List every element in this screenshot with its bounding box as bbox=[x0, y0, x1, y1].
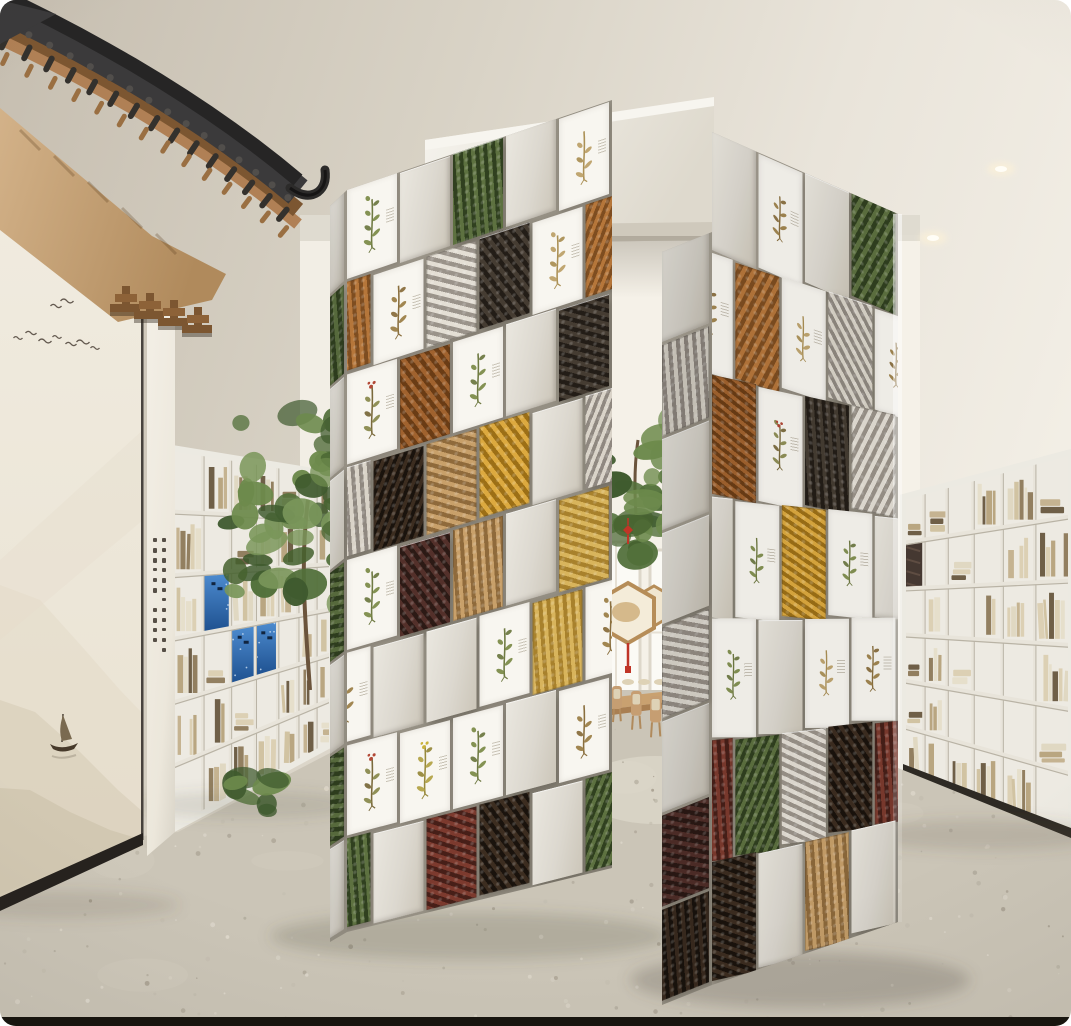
herb-photo-block bbox=[712, 375, 756, 503]
specimen-caption bbox=[386, 207, 394, 224]
plain-block bbox=[506, 118, 556, 227]
herb-photo-block bbox=[559, 486, 609, 593]
specimen-caption bbox=[518, 638, 526, 654]
herb-photo-block bbox=[662, 797, 709, 907]
herb-photo-block bbox=[330, 562, 344, 662]
herb-print-block bbox=[782, 277, 826, 402]
herb-photo-block bbox=[400, 344, 450, 450]
herb-photo-block bbox=[427, 806, 477, 909]
specimen-caption bbox=[814, 330, 822, 347]
herb-photo-block bbox=[805, 832, 849, 950]
herb-print-block bbox=[805, 619, 849, 728]
plain-block bbox=[852, 821, 896, 934]
herb-print-block bbox=[347, 359, 397, 465]
plain-block bbox=[506, 309, 556, 416]
herb-print-block bbox=[828, 509, 872, 620]
plain-block bbox=[506, 499, 556, 605]
specimen-caption bbox=[861, 553, 869, 568]
herb-photo-block bbox=[330, 284, 344, 386]
herb-print-block bbox=[453, 705, 503, 809]
herb-print-block bbox=[712, 618, 756, 737]
herb-photo-block bbox=[712, 852, 756, 981]
specimen-caption bbox=[492, 741, 500, 757]
herb-photo-block bbox=[662, 891, 709, 1001]
herb-print-block bbox=[347, 732, 397, 835]
plain-block bbox=[805, 173, 849, 301]
herb-print-block bbox=[453, 326, 503, 433]
plain-block bbox=[759, 620, 803, 734]
plain-block bbox=[533, 398, 583, 505]
specimen-caption bbox=[386, 394, 394, 411]
herb-print-block bbox=[559, 102, 609, 211]
herb-print-block bbox=[480, 602, 530, 707]
portal-right-wall bbox=[712, 132, 898, 985]
plain-block bbox=[330, 655, 344, 754]
plain-block bbox=[330, 192, 344, 294]
herb-photo-block bbox=[782, 728, 826, 844]
portal-left-wall-edge bbox=[330, 190, 347, 942]
plain-block bbox=[374, 633, 424, 737]
specimen-caption bbox=[492, 362, 500, 379]
herb-print-block bbox=[374, 259, 424, 365]
herb-photo-block bbox=[662, 326, 709, 436]
herb-photo-block bbox=[735, 263, 779, 394]
herb-photo-block bbox=[480, 792, 530, 896]
portal-right-wall-end bbox=[662, 232, 712, 1005]
herb-photo-block bbox=[852, 405, 896, 518]
herb-photo-block bbox=[427, 240, 477, 347]
plain-block bbox=[330, 470, 344, 570]
specimen-caption bbox=[386, 767, 394, 783]
herb-photo-block bbox=[782, 505, 826, 621]
herb-print-block bbox=[533, 207, 583, 315]
plain-block bbox=[374, 821, 424, 924]
specimen-caption bbox=[571, 243, 579, 260]
specimen-caption bbox=[359, 681, 367, 697]
herb-print-block bbox=[852, 618, 896, 722]
specimen-caption bbox=[386, 581, 394, 597]
herb-print-block bbox=[347, 545, 397, 649]
specimen-caption bbox=[837, 660, 845, 674]
herb-photo-block bbox=[533, 589, 583, 695]
herb-photo-block bbox=[828, 722, 872, 833]
herb-photo-block bbox=[453, 137, 503, 245]
herb-photo-block bbox=[330, 748, 344, 846]
herb-photo-block bbox=[662, 609, 709, 719]
plain-block bbox=[712, 131, 756, 269]
herb-photo-block bbox=[828, 291, 872, 411]
herb-photo-block bbox=[453, 516, 503, 622]
herb-print-block bbox=[735, 501, 779, 622]
herb-photo-block bbox=[400, 532, 450, 637]
specimen-caption bbox=[884, 657, 892, 671]
herb-print-block bbox=[759, 387, 803, 510]
herb-print-block bbox=[559, 678, 609, 784]
herb-photo-block bbox=[374, 446, 424, 551]
specimen-caption bbox=[598, 714, 606, 730]
plain-block bbox=[662, 703, 709, 813]
portal-left-wall bbox=[347, 100, 612, 932]
image-bottom-edge bbox=[0, 1017, 1071, 1026]
herb-photo-block bbox=[559, 294, 609, 402]
herb-photo-block bbox=[852, 193, 896, 315]
plain-block bbox=[662, 421, 709, 531]
plain-block bbox=[506, 690, 556, 795]
specimen-caption bbox=[791, 211, 799, 229]
specimen-caption bbox=[768, 549, 776, 564]
herb-photo-block bbox=[480, 412, 530, 519]
herb-print-block bbox=[759, 154, 803, 287]
specimen-caption bbox=[439, 755, 447, 771]
exhibition-room-photo bbox=[0, 0, 1071, 1026]
plain-block bbox=[330, 840, 344, 938]
wall-edge-highlight bbox=[893, 214, 902, 922]
specimen-caption bbox=[598, 138, 606, 155]
specimen-caption bbox=[412, 294, 420, 311]
plain-block bbox=[330, 377, 344, 478]
plain-block bbox=[427, 618, 477, 723]
plain-block bbox=[533, 781, 583, 886]
herb-photo-block bbox=[427, 429, 477, 535]
plain-block bbox=[662, 515, 709, 625]
herb-photo-block bbox=[805, 396, 849, 514]
herb-photo-block bbox=[480, 222, 530, 330]
plain-block bbox=[759, 844, 803, 968]
plain-block bbox=[400, 156, 450, 263]
specimen-caption bbox=[744, 663, 752, 677]
herb-print-block bbox=[400, 720, 450, 824]
herb-photo-block bbox=[735, 735, 779, 856]
specimen-caption bbox=[791, 437, 799, 453]
specimen-caption bbox=[721, 302, 729, 319]
herb-print-block bbox=[347, 172, 397, 279]
